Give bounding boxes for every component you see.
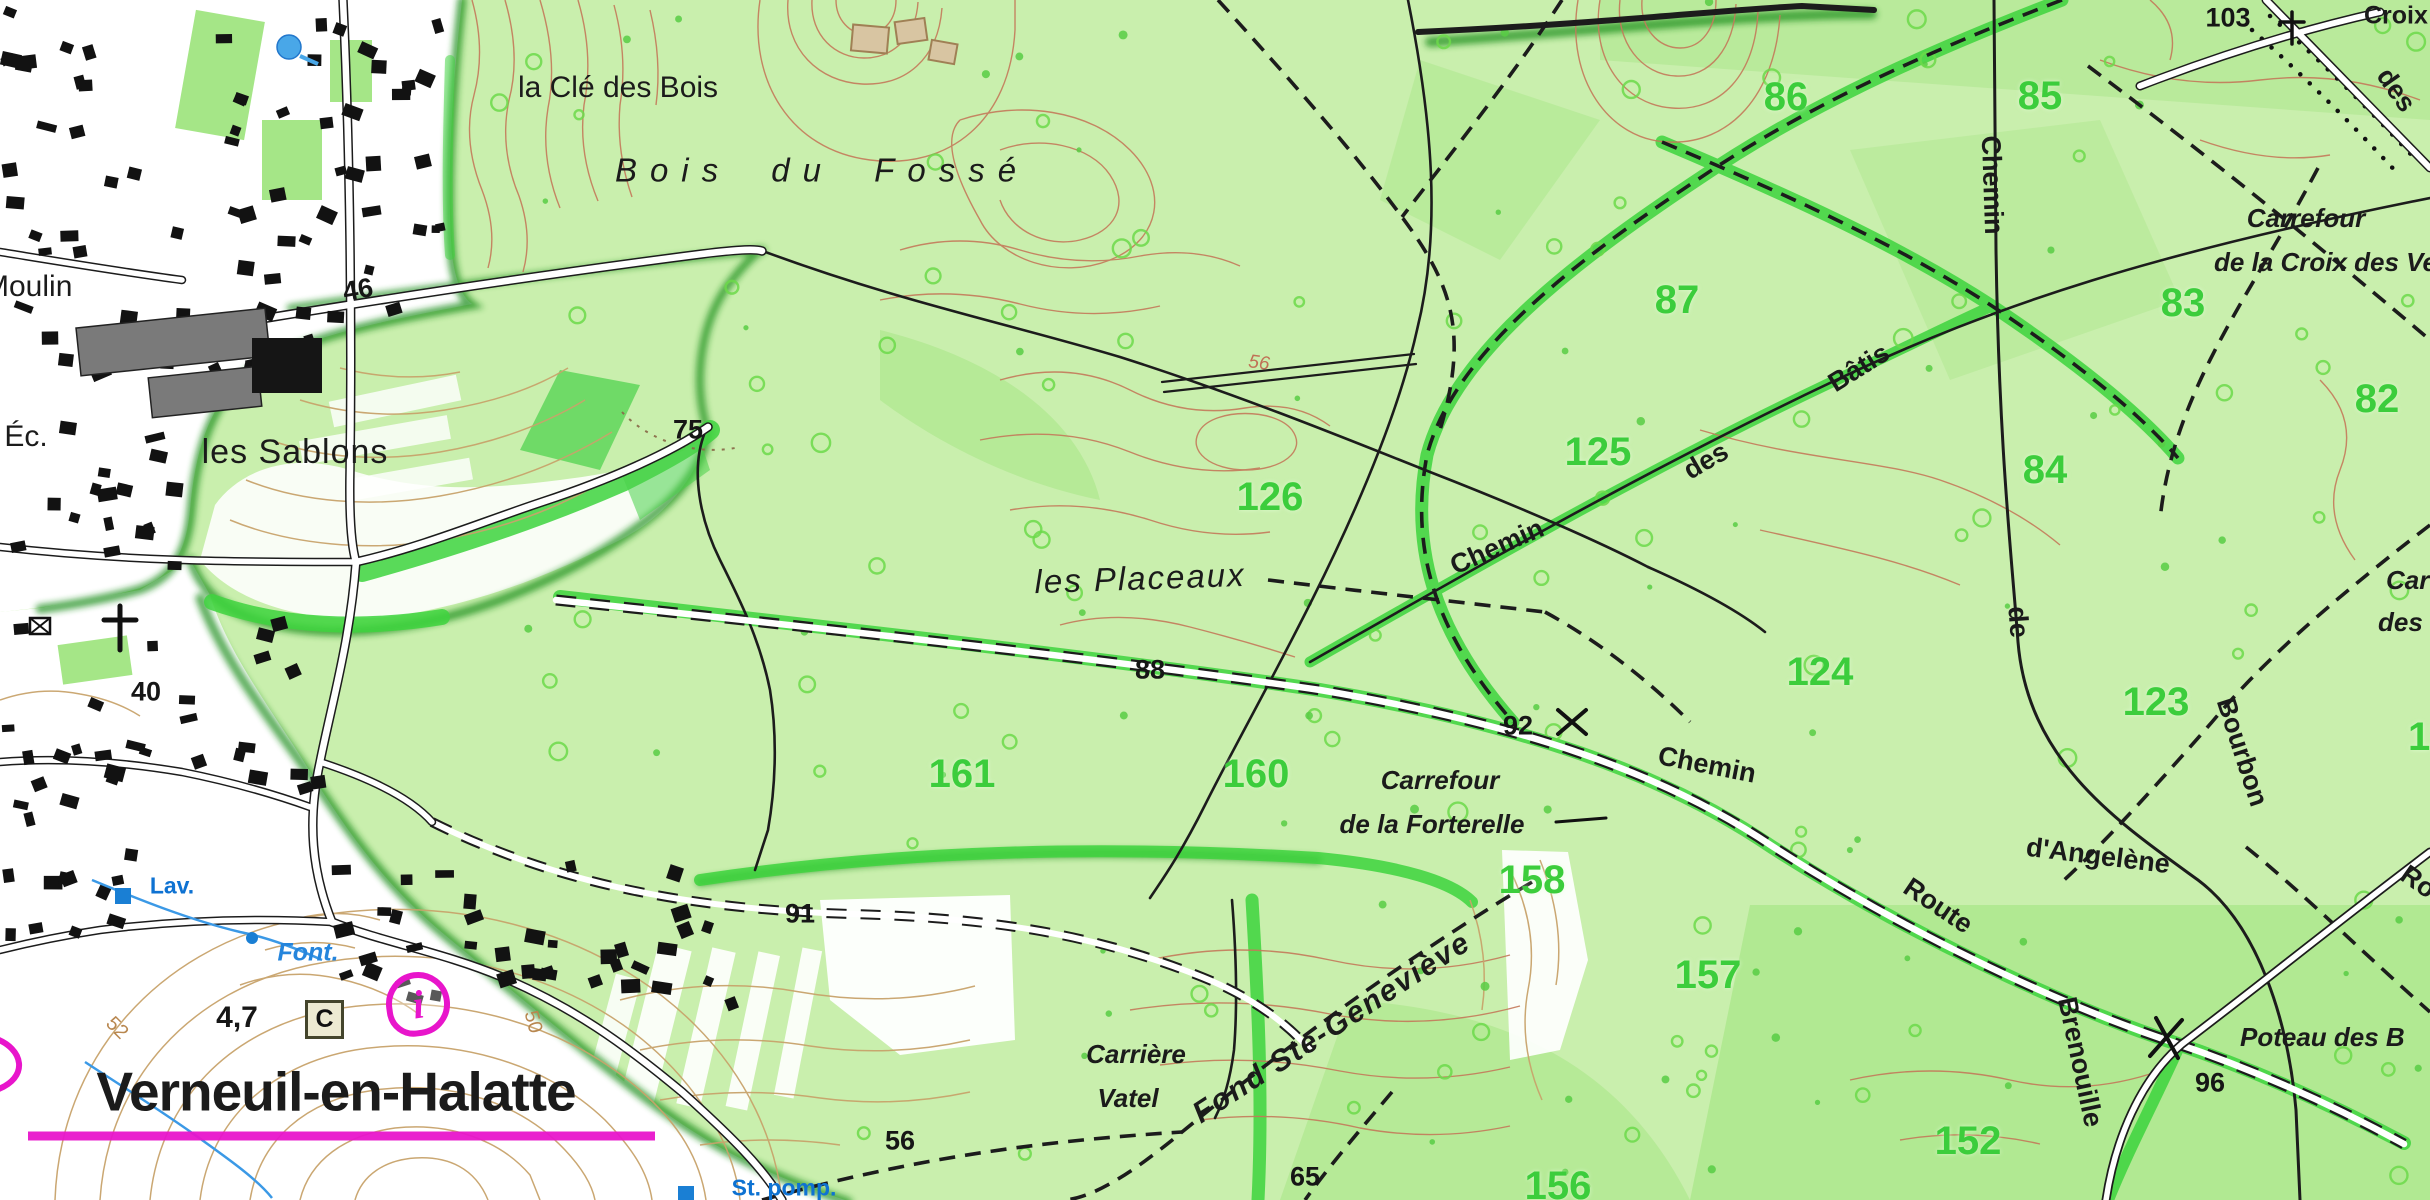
parcel-124: 124	[1787, 652, 1854, 692]
parcel-157: 157	[1675, 955, 1742, 995]
parcel-12-cut: 12	[2408, 717, 2430, 757]
road-brenouille: Brenouille	[2053, 995, 2107, 1130]
road-des-ne: des	[2372, 63, 2421, 117]
carrefour-croix-veneurs-line1: Carrefour	[2247, 205, 2365, 231]
road-chemin-angelene: Chemin	[1656, 742, 1758, 787]
town-verneuil-en-halatte: Verneuil-en-Halatte	[96, 1065, 575, 1120]
spot-46: 46	[341, 274, 375, 306]
place-poteau-des-b: Poteau des B	[2240, 1024, 2405, 1050]
hydro-font: Font.	[277, 941, 338, 966]
road-chemin-batis-1: Chemin	[1446, 515, 1547, 580]
spot-91: 91	[785, 901, 815, 928]
parcel-152: 152	[1935, 1121, 2002, 1161]
spot-40: 40	[131, 679, 161, 706]
place-ec: Éc.	[4, 422, 47, 452]
road-ro-cut: Ro	[2396, 861, 2430, 904]
contour-50: 50	[520, 1009, 545, 1036]
spot-65: 65	[1290, 1164, 1320, 1191]
spot-75: 75	[673, 417, 703, 444]
map-labels-layer: la Clé des BoisBois du Fosséles Sablonsl…	[0, 0, 2430, 1200]
place-vatel: Vatel	[1097, 1085, 1158, 1111]
parcel-82: 82	[2355, 379, 2400, 419]
place-les-placeaux: les Placeaux	[1034, 558, 1246, 598]
road-route: Route	[1899, 873, 1978, 938]
spot-4-7: 4,7	[216, 1003, 258, 1033]
carrefour-forterelle-line1: Carrefour	[1381, 767, 1499, 793]
carrefour-forterelle-line2: de la Forterelle	[1340, 811, 1525, 837]
place-la-cle-des-bois: la Clé des Bois	[518, 73, 718, 103]
parcel-158: 158	[1499, 860, 1566, 900]
road-de-bourbon: de	[2003, 605, 2032, 638]
contour-56: 56	[1247, 352, 1271, 374]
place-fond-ste-genevieve: Fond Ste-Geneviève	[1188, 927, 1476, 1129]
parcel-86: 86	[1764, 77, 1809, 117]
parcel-87: 87	[1655, 280, 1700, 320]
parcel-85: 85	[2018, 76, 2063, 116]
road-chemin-batis-2: des	[1679, 438, 1733, 485]
spot-96: 96	[2195, 1070, 2225, 1097]
parcel-84: 84	[2023, 450, 2068, 490]
road-chemin-batis-3: Bâtis	[1824, 339, 1894, 397]
place-les-sablons: les Sablons	[202, 435, 389, 469]
road-chemin-north: Chemin	[1977, 135, 2007, 235]
place-carriere: Carrière	[1086, 1041, 1186, 1067]
parcel-126: 126	[1237, 477, 1304, 517]
road-dangelene: d'Angelène	[2025, 834, 2172, 878]
place-des-v-cut: des V	[2378, 609, 2430, 635]
cadastre-c-marker: C	[305, 1000, 344, 1039]
carrefour-croix-veneurs-line2: de la Croix des Veneu	[2214, 249, 2430, 275]
spot-92: 92	[1503, 713, 1533, 740]
parcel-83: 83	[2161, 283, 2206, 323]
tourist-info-letter: i	[409, 980, 427, 1028]
parcel-160: 160	[1223, 754, 1290, 794]
road-bourbon: Bourbon	[2212, 694, 2272, 809]
place-croix: Croix	[2364, 4, 2428, 29]
topographic-map-viewport[interactable]: la Clé des BoisBois du Fosséles Sablonsl…	[0, 0, 2430, 1200]
place-moulin: Moulin	[0, 272, 72, 302]
contour-52: 52	[102, 1013, 132, 1043]
parcel-123: 123	[2123, 682, 2190, 722]
spot-56: 56	[885, 1128, 915, 1155]
place-bois-du-fosse: Bois du Fossé	[615, 154, 1029, 187]
hydro-st-pomp: St. pomp.	[732, 1177, 837, 1200]
cadastre-c-letter: C	[315, 1005, 333, 1034]
spot-103: 103	[2205, 5, 2250, 32]
parcel-125: 125	[1565, 432, 1632, 472]
parcel-156: 156	[1525, 1166, 1592, 1200]
spot-88: 88	[1135, 657, 1165, 684]
hydro-lav: Lav.	[150, 875, 194, 898]
parcel-161: 161	[929, 754, 996, 794]
place-car-cut: Car	[2386, 567, 2429, 593]
